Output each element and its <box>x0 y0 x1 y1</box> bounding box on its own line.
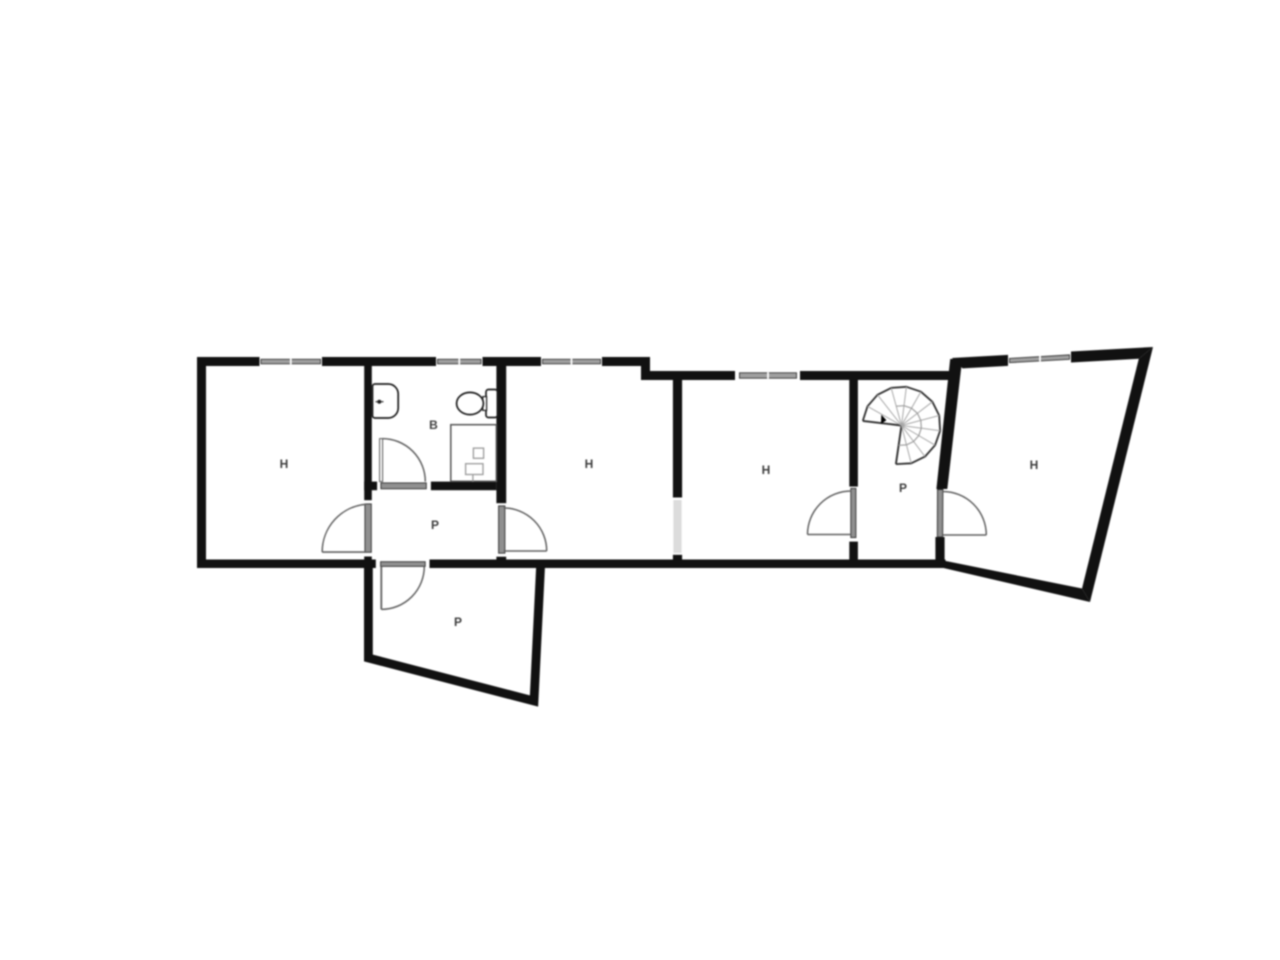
svg-text:H: H <box>762 463 771 477</box>
svg-text:P: P <box>431 518 439 532</box>
svg-text:H: H <box>1030 458 1039 472</box>
svg-text:H: H <box>280 457 289 471</box>
svg-text:P: P <box>454 615 462 629</box>
svg-text:H: H <box>585 457 594 471</box>
svg-text:B: B <box>429 418 438 432</box>
svg-text:P: P <box>899 481 907 495</box>
